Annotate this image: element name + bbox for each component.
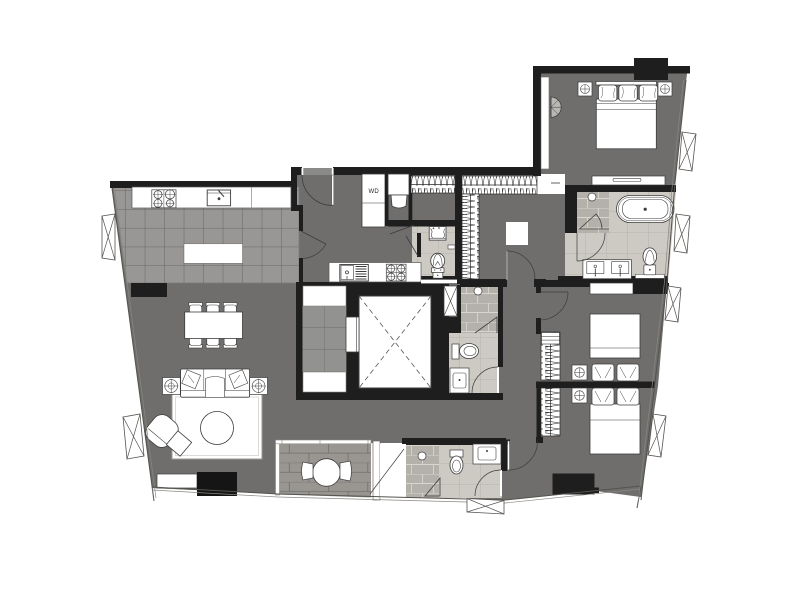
svg-text:WD: WD — [369, 189, 380, 195]
